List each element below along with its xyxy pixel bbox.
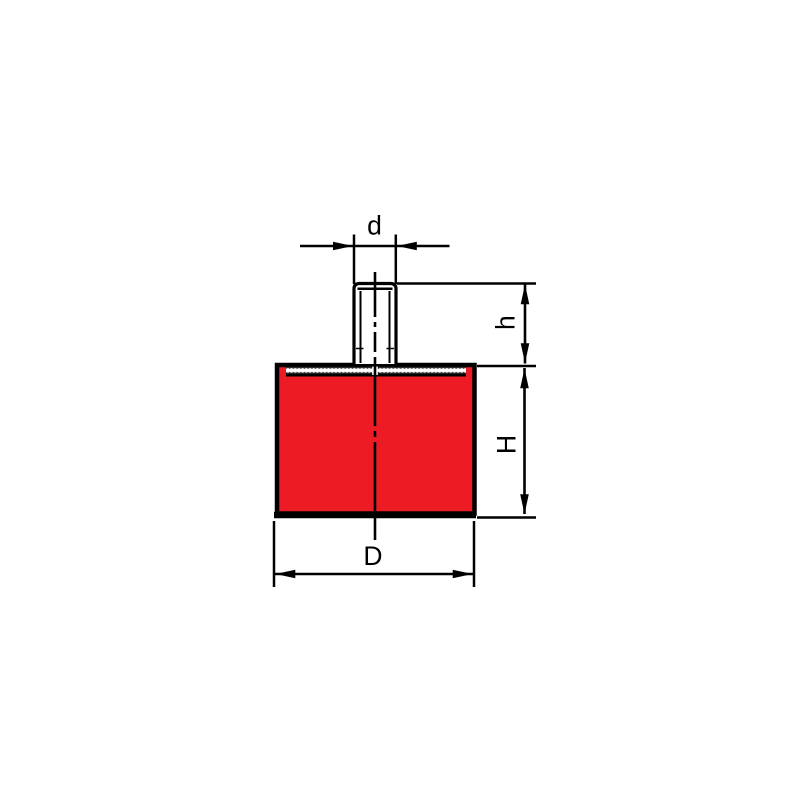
svg-text:d: d	[367, 211, 382, 241]
svg-text:D: D	[363, 541, 382, 571]
svg-text:h: h	[491, 315, 521, 330]
svg-text:H: H	[492, 435, 522, 455]
